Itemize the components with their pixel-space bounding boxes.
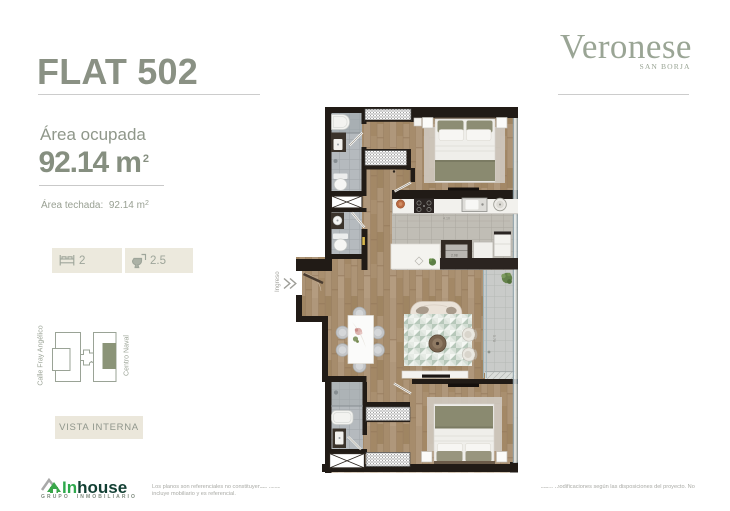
svg-text:2.08: 2.08 [451, 254, 458, 258]
svg-text:Ingreso: Ingreso [274, 271, 281, 292]
svg-text:5.78: 5.78 [492, 335, 496, 342]
svg-text:4.10: 4.10 [443, 217, 450, 221]
